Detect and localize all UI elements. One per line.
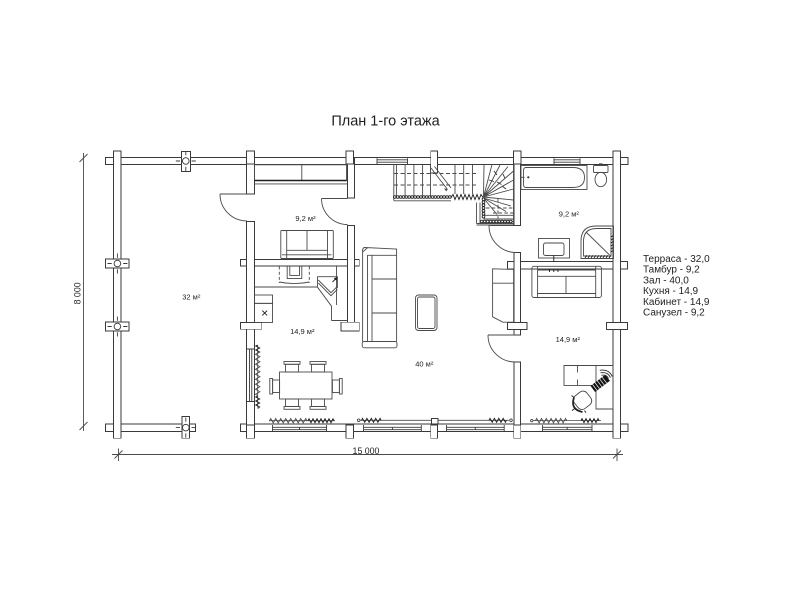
svg-text:15 000: 15 000 [353,446,380,456]
svg-text:Санузел - 9,2: Санузел - 9,2 [643,308,705,319]
svg-text:40 м²: 40 м² [415,359,434,368]
svg-text:14,9 м²: 14,9 м² [290,327,315,336]
svg-text:Терраса - 32,0: Терраса - 32,0 [643,254,710,265]
svg-text:План 1-го этажа: План 1-го этажа [331,114,440,130]
svg-text:9,2 м²: 9,2 м² [295,214,316,223]
svg-text:Кабинет - 14,9: Кабинет - 14,9 [643,296,710,308]
svg-text:Зал - 40,0: Зал - 40,0 [643,275,689,286]
svg-text:Тамбур - 9,2: Тамбур - 9,2 [643,264,700,276]
svg-text:9,2 м²: 9,2 м² [559,210,580,219]
svg-text:32 м²: 32 м² [182,292,201,301]
svg-text:Кухня - 14,9: Кухня - 14,9 [643,286,699,297]
svg-text:8 000: 8 000 [73,282,83,304]
svg-text:14,9 м²: 14,9 м² [556,335,581,344]
